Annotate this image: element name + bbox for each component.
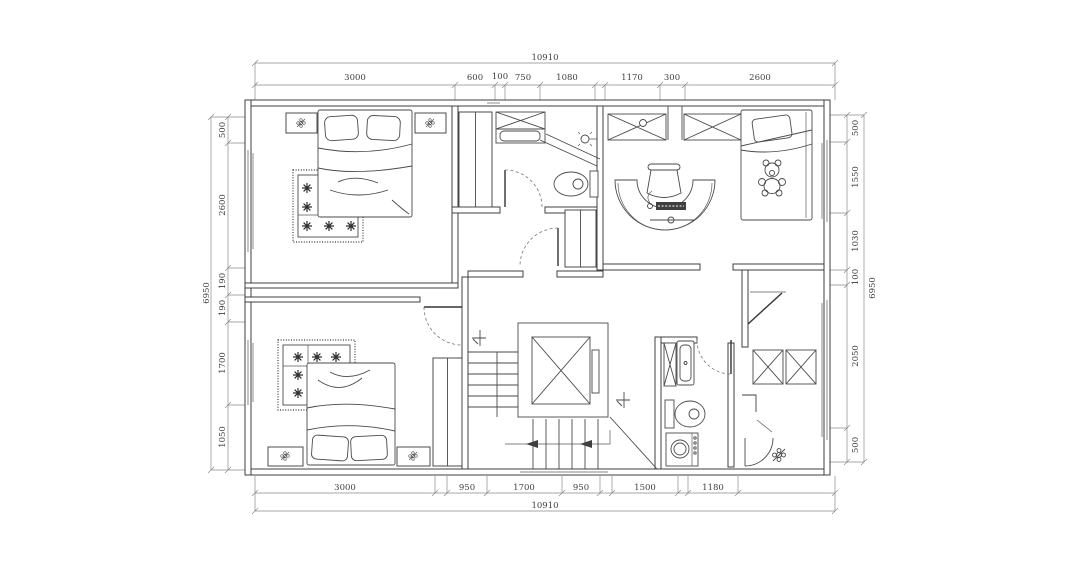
dimension-bottom: 3000 950 1700 950 1500 1180 10910 — [252, 476, 838, 514]
wall-bath2-left — [655, 337, 661, 469]
dim-label-bottom-seg5: 1180 — [702, 483, 724, 493]
dim-label-top-seg6: 300 — [664, 73, 680, 83]
closet-chamfer — [757, 420, 772, 432]
section-mark-icon — [472, 330, 486, 346]
stair-treads-upper — [468, 352, 518, 417]
wall-closet-notch — [742, 395, 756, 412]
desk-chair — [647, 164, 681, 198]
sink-vanity-2 — [664, 341, 694, 386]
dim-label-top-seg2: 100 — [492, 72, 508, 82]
dim-label-right-seg1: 1550 — [851, 166, 861, 188]
wardrobe-x-4 — [786, 350, 816, 384]
dim-label-left-seg1: 2600 — [218, 194, 228, 216]
dimension-right-chain-line — [830, 112, 850, 465]
dim-label-right-seg4: 2050 — [851, 345, 861, 367]
wall-stair-top-a — [468, 271, 523, 277]
wall-study-bottom-b — [733, 264, 824, 270]
dim-label-right-seg0: 500 — [851, 120, 861, 136]
stair-diagonal — [610, 417, 657, 469]
bathroom-2 — [664, 341, 705, 466]
section-mark-icon — [616, 392, 630, 408]
dim-label-bottom-seg3: 950 — [573, 483, 589, 493]
double-bed-1 — [318, 110, 412, 217]
dim-label-left-seg4: 1700 — [218, 352, 228, 374]
dim-label-left-seg3: 190 — [218, 300, 228, 316]
wall-hall-stub — [742, 270, 748, 347]
dim-label-top-seg4: 1080 — [556, 73, 578, 83]
door-arc-bath2 — [697, 340, 731, 374]
wardrobe-x-1 — [608, 114, 666, 140]
stair-arrow-icon — [526, 440, 538, 448]
wall-stair-top-b — [557, 271, 603, 277]
dimension-top: 10910 3000 600 100 750 1080 1170 300 260… — [252, 53, 838, 100]
door-leaf-childroom-open — [748, 293, 782, 324]
dim-label-top-seg0: 3000 — [344, 73, 366, 83]
nightstand-4 — [397, 447, 430, 466]
plant-icon — [773, 449, 786, 462]
wall-corridor-upper — [245, 283, 458, 288]
dim-label-top-seg3: 750 — [515, 73, 531, 83]
outer-wall-top — [245, 100, 830, 106]
dim-label-left-total: 6950 — [202, 282, 212, 304]
dim-label-top-seg5: 1170 — [621, 73, 643, 83]
wall-bath1-bottom-left — [452, 207, 500, 213]
wardrobe-tall — [433, 358, 462, 466]
stairwell — [468, 323, 657, 469]
door-arc-bedroom2 — [424, 307, 462, 345]
elevator-door — [592, 350, 599, 393]
dim-label-bottom-total: 10910 — [531, 501, 558, 511]
dimension-right: 500 1550 1030 100 2050 500 6950 — [830, 112, 878, 465]
study-room — [608, 106, 812, 230]
dim-label-top-total: 10910 — [531, 53, 558, 63]
nightstand-3 — [268, 447, 303, 466]
bedroom-2 — [268, 340, 462, 466]
dim-label-bottom-seg2: 1700 — [513, 483, 535, 493]
door-arc-bath1 — [505, 170, 542, 207]
closet-door-arc — [745, 438, 773, 466]
dim-label-top-seg7: 2600 — [749, 73, 771, 83]
dim-label-right-seg2: 1030 — [851, 230, 861, 252]
dim-label-bottom-seg0: 3000 — [334, 483, 356, 493]
floor-plan-drawing: 10910 3000 600 100 750 1080 1170 300 260… — [0, 0, 1074, 576]
dim-label-bottom-seg4: 1500 — [634, 483, 656, 493]
nightstand-1 — [286, 113, 317, 133]
dimension-left: 500 2600 190 190 1700 1050 6950 — [202, 114, 245, 473]
dimension-top-chain-line — [252, 82, 838, 100]
washing-machine — [666, 433, 698, 466]
shower-head-icon — [578, 132, 597, 146]
knob-icon — [640, 120, 647, 127]
column-between-wardrobes — [668, 106, 682, 140]
wall-bedroom1-right — [452, 106, 458, 285]
closet-1 — [459, 112, 492, 207]
dim-label-bottom-seg1: 950 — [459, 483, 475, 493]
dim-label-left-seg5: 1050 — [218, 426, 228, 448]
door-arc-hall — [520, 228, 558, 266]
bathroom-1 — [496, 112, 600, 197]
sink-vanity-1 — [496, 112, 545, 143]
toilet-1 — [554, 171, 598, 197]
wall-bedroom2-top — [245, 297, 420, 302]
double-bed-2 — [307, 363, 395, 465]
stair-direction-line — [505, 430, 610, 444]
wall-stair-left — [462, 277, 468, 469]
stair-arrow-icon — [580, 440, 592, 448]
elevator-shaft — [518, 323, 608, 417]
dim-label-left-seg0: 500 — [218, 122, 228, 138]
bedroom-1 — [286, 110, 446, 242]
dim-label-right-total: 6950 — [868, 277, 878, 299]
toilet-2 — [665, 400, 705, 428]
wardrobe-x-3 — [753, 350, 783, 384]
closet-2 — [565, 210, 596, 267]
dim-label-right-seg3: 100 — [851, 269, 861, 285]
nightstand-2 — [415, 113, 446, 133]
dim-label-left-seg2: 190 — [218, 273, 228, 289]
dim-label-right-seg5: 500 — [851, 437, 861, 453]
dim-label-top-seg1: 600 — [467, 73, 483, 83]
dimension-right-overall-line — [847, 112, 867, 465]
wall-study-bottom-a — [603, 264, 700, 270]
wardrobe-x-2 — [684, 114, 741, 140]
dimension-left-chain-line — [225, 114, 245, 473]
floor-plan-canvas: 10910 3000 600 100 750 1080 1170 300 260… — [0, 0, 1074, 576]
